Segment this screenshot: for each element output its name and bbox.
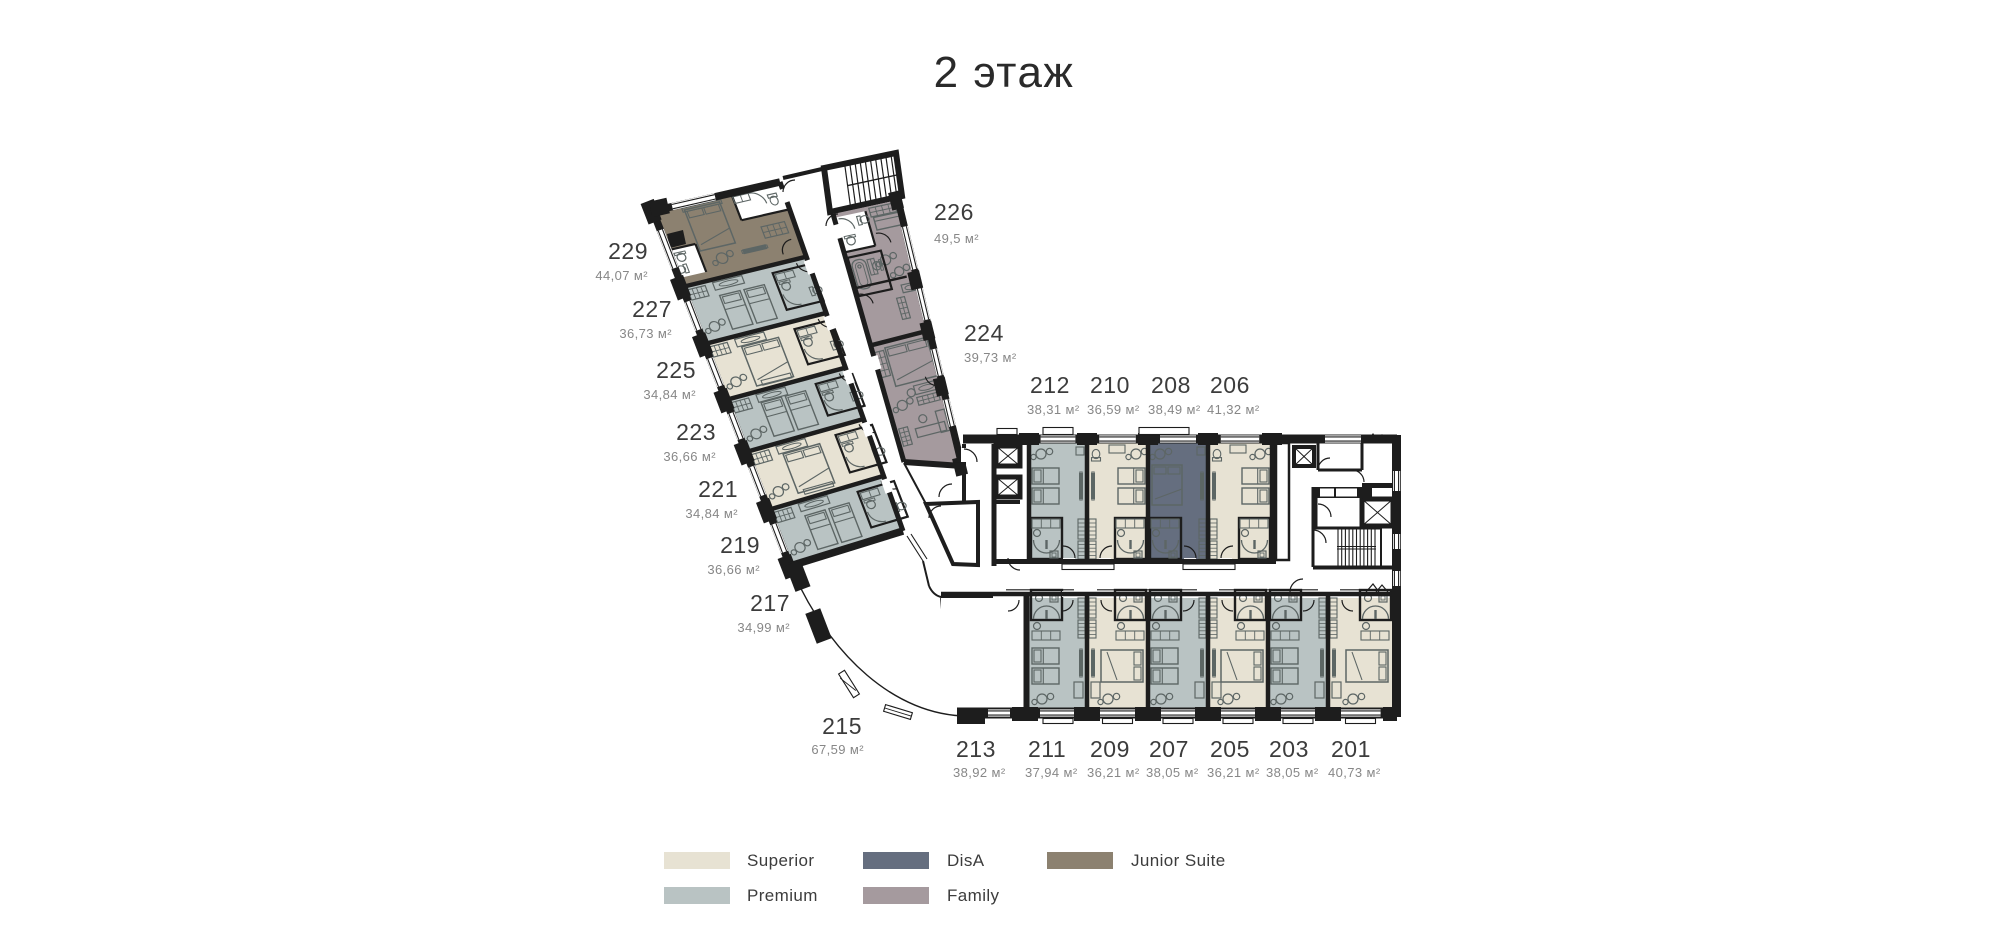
svg-text:38,31 м²: 38,31 м² [1027, 402, 1080, 417]
svg-text:225: 225 [656, 357, 696, 383]
svg-text:2 этаж: 2 этаж [934, 48, 1075, 97]
svg-text:209: 209 [1090, 736, 1130, 762]
svg-text:208: 208 [1151, 372, 1191, 398]
svg-text:221: 221 [698, 476, 738, 502]
svg-text:206: 206 [1210, 372, 1250, 398]
svg-text:219: 219 [720, 532, 760, 558]
svg-text:41,32 м²: 41,32 м² [1207, 402, 1260, 417]
svg-text:212: 212 [1030, 372, 1070, 398]
svg-text:210: 210 [1090, 372, 1130, 398]
svg-text:201: 201 [1331, 736, 1371, 762]
svg-text:36,21 м²: 36,21 м² [1087, 765, 1140, 780]
svg-text:34,99 м²: 34,99 м² [737, 620, 790, 635]
svg-text:49,5 м²: 49,5 м² [934, 231, 979, 246]
svg-text:38,05 м²: 38,05 м² [1146, 765, 1199, 780]
svg-text:217: 217 [750, 590, 790, 616]
svg-text:34,84 м²: 34,84 м² [685, 506, 738, 521]
svg-text:Premium: Premium [747, 886, 818, 905]
svg-text:38,49 м²: 38,49 м² [1148, 402, 1201, 417]
svg-text:227: 227 [632, 296, 672, 322]
svg-text:Family: Family [947, 886, 1000, 905]
svg-text:36,66 м²: 36,66 м² [663, 449, 716, 464]
svg-text:223: 223 [676, 419, 716, 445]
svg-text:40,73 м²: 40,73 м² [1328, 765, 1381, 780]
svg-text:DisA: DisA [947, 851, 985, 870]
svg-text:39,73 м²: 39,73 м² [964, 350, 1017, 365]
svg-text:Superior: Superior [747, 851, 814, 870]
svg-text:205: 205 [1210, 736, 1250, 762]
svg-text:34,84 м²: 34,84 м² [643, 387, 696, 402]
svg-text:215: 215 [822, 713, 862, 739]
svg-text:38,92 м²: 38,92 м² [953, 765, 1006, 780]
svg-text:36,21 м²: 36,21 м² [1207, 765, 1260, 780]
svg-text:36,73 м²: 36,73 м² [619, 326, 672, 341]
svg-text:229: 229 [608, 238, 648, 264]
svg-text:36,66 м²: 36,66 м² [707, 562, 760, 577]
svg-text:37,94 м²: 37,94 м² [1025, 765, 1078, 780]
svg-text:Junior Suite: Junior Suite [1131, 851, 1226, 870]
svg-text:211: 211 [1028, 736, 1066, 762]
svg-text:44,07 м²: 44,07 м² [595, 268, 648, 283]
svg-text:213: 213 [956, 736, 996, 762]
svg-text:203: 203 [1269, 736, 1309, 762]
svg-text:67,59 м²: 67,59 м² [811, 742, 864, 757]
svg-text:207: 207 [1149, 736, 1189, 762]
svg-text:36,59 м²: 36,59 м² [1087, 402, 1140, 417]
svg-text:226: 226 [934, 199, 974, 225]
svg-text:38,05 м²: 38,05 м² [1266, 765, 1319, 780]
svg-text:224: 224 [964, 320, 1004, 346]
